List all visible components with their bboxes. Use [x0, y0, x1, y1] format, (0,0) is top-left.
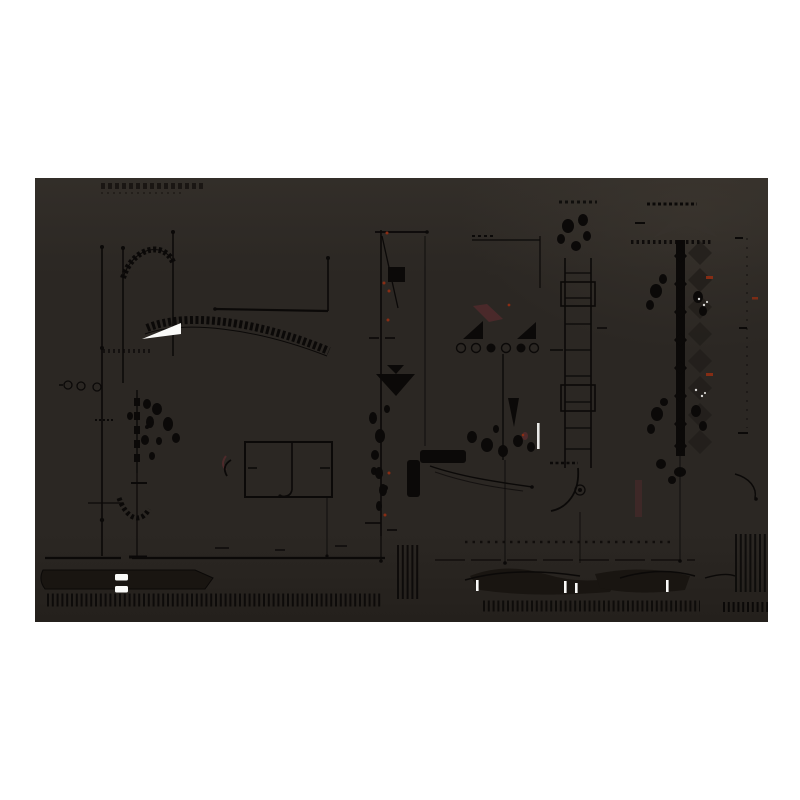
- patent-drawing-svg: [35, 178, 768, 622]
- white-column-dash: [537, 423, 540, 449]
- artwork: [35, 178, 768, 622]
- black-bar: [420, 450, 466, 463]
- equals-highlight-bottom: [115, 586, 128, 593]
- equals-highlight-top: [115, 574, 128, 581]
